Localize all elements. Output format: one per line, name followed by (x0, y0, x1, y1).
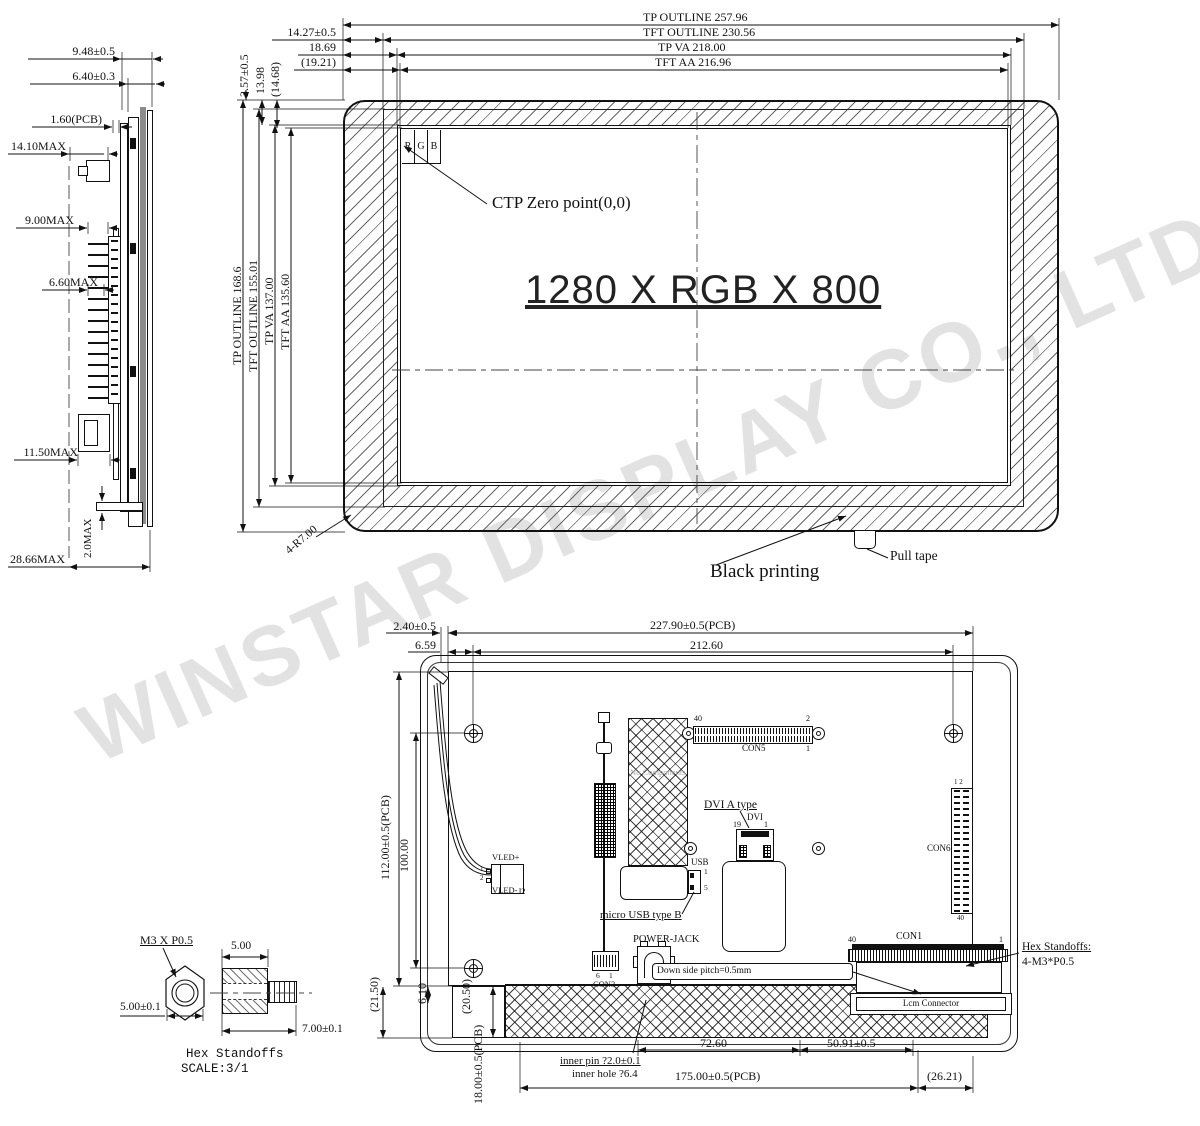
side-boss-top (86, 160, 110, 182)
lcm-connector-inner: Lcm Connector (856, 997, 1006, 1011)
con1-pin-row (848, 949, 1008, 962)
con6-label: CON6 (927, 844, 951, 854)
dvi-pin19: 19 (733, 821, 741, 830)
frame-clip (130, 366, 136, 377)
hex-standoffs-note: Hex Standoffs: (1022, 941, 1091, 954)
dim-11200: 112.00±0.5(PCB) (379, 795, 392, 880)
frame-clip (130, 468, 136, 479)
side-glass (147, 110, 153, 527)
standoff-thread-label: M3 X P0.5 (140, 934, 193, 947)
side-connector-holes (111, 240, 118, 400)
usb-pin5: 5 (704, 884, 708, 892)
dim-2050: (20.50) (460, 979, 473, 1014)
dim-tft-outline-height: TFT OUTLINE 155.01 (247, 260, 260, 372)
vled-minus-label: VLED- (492, 886, 518, 895)
con6-pins-col2 (963, 790, 969, 912)
dvi-foot (763, 845, 771, 858)
dim-tft-aa-height: TFT AA 135.60 (279, 274, 292, 350)
dim-500-top: 5.00 (231, 940, 251, 953)
side-tape (140, 107, 146, 524)
dim-700: 7.00±0.1 (302, 1023, 343, 1036)
dim-1150: 11.50MAX (14, 446, 78, 459)
rod-pad (598, 712, 610, 723)
side-bracket-horizontal (96, 502, 143, 511)
vled-plus-label: VLED+ (492, 853, 519, 862)
side-connector-pins (88, 243, 109, 401)
con6-pin12: 1 2 (954, 779, 963, 787)
con1-pin40: 40 (848, 936, 856, 945)
dim-357: 3.57±0.5 (238, 54, 251, 97)
standoff-title: Hex Standoffs (186, 1048, 284, 1062)
micro-usb-label: micro USB type B (600, 909, 682, 921)
vled-pin1: 1 (480, 866, 484, 874)
con3-pin6: 6 (596, 972, 600, 980)
side-boss-top-pin (78, 166, 88, 176)
board-hole (684, 842, 697, 855)
dim-2621: (26.21) (927, 1070, 962, 1083)
power-jack-tab (633, 956, 638, 968)
dim-900: 9.00MAX (16, 214, 74, 227)
con5-pin40: 40 (694, 715, 702, 724)
pitch-label: Down side pitch=0.5mm (657, 966, 751, 976)
engineering-drawing: WINSTAR DISPLAY CO., LTD. R G B CTP Zero… (0, 0, 1200, 1126)
standoff-scale: SCALE:3/1 (181, 1063, 249, 1077)
standoff-stud (268, 981, 297, 1003)
standoff-bore (223, 983, 267, 1000)
con1-pin1: 1 (999, 936, 1003, 945)
pull-tape-label: Pull tape (890, 549, 938, 564)
black-printing-label: Black printing (710, 562, 819, 583)
mounting-screw (464, 959, 483, 978)
con5-pin1: 1 (806, 745, 810, 754)
vled-j2-label: J2 (518, 887, 526, 896)
con3-pins (594, 955, 617, 967)
dim-240: 2.40±0.5 (384, 620, 436, 633)
pull-tape-tab (854, 530, 876, 549)
vled-pin (486, 878, 491, 883)
dim-948: 9.48±0.5 (28, 45, 115, 58)
no-components-area (628, 718, 688, 866)
hex-standoffs-spec: 4-M3*P0.5 (1022, 956, 1074, 969)
dvi-pin1: 1 (764, 821, 768, 830)
dim-640: 6.40±0.3 (30, 70, 115, 83)
dvi-type-label: DVI A type (704, 799, 757, 812)
rod-cap (596, 742, 612, 754)
dvi-top-bar (741, 831, 769, 837)
dvi-label: DVI (747, 813, 763, 823)
frame-clip (130, 243, 136, 254)
dim-tp-va-width: TP VA 218.00 (658, 41, 725, 54)
con6-pin40: 40 (957, 915, 964, 923)
dim-1427: 14.27±0.5 (270, 26, 336, 39)
dim-22790: 227.90±0.5(PCB) (650, 619, 735, 632)
dim-5091: 50.91±0.5 (827, 1037, 876, 1050)
mounting-screw (944, 724, 963, 743)
frame-clip (130, 138, 136, 149)
board-hole (812, 842, 825, 855)
con5-pins-row2 (695, 736, 811, 742)
dim-tp-outline-height: TP OUTLINE 168.6 (231, 266, 244, 365)
vled-pin (486, 869, 491, 874)
dim-2866: 28.66MAX (3, 553, 65, 566)
con5-label: CON5 (742, 744, 766, 754)
dim-500: 5.00±0.1 (120, 1001, 161, 1014)
dim-7260: 72.60 (700, 1037, 727, 1050)
usb-pad (690, 885, 694, 890)
inner-pin-note: inner pin ?2.0±0.1 (560, 1055, 641, 1067)
vled-pin2: 2 (480, 875, 484, 883)
side-component-inner (84, 420, 98, 446)
dim-1869: 18.69 (296, 41, 336, 54)
dim-660: 6.60MAX (40, 276, 98, 289)
dim-tp-outline-width: TP OUTLINE 257.96 (643, 11, 748, 24)
corner-radius-label: 4-R7.00 (283, 523, 320, 557)
dim-659: 6.59 (406, 639, 436, 652)
dim-1410: 14.10MAX (8, 140, 66, 153)
board-hole (812, 727, 825, 740)
no-components-label: No Components (630, 768, 686, 777)
usb-pin1: 1 (704, 868, 708, 876)
con6-pins-col1 (954, 790, 960, 912)
dim-17500: 175.00±0.5(PCB) (675, 1070, 760, 1083)
dim-1398: 13.98 (254, 67, 267, 94)
dim-1800: 18.00±0.5(PCB) (472, 1025, 485, 1104)
ctp-zero-point-label: CTP Zero point(0,0) (492, 194, 631, 213)
dim-10000: 100.00 (398, 839, 411, 872)
usb-module (620, 866, 688, 900)
lcm-connector-label: Lcm Connector (903, 999, 959, 1009)
rod-sleeve (594, 783, 616, 858)
dim-tft-aa-width: TFT AA 216.96 (655, 56, 731, 69)
power-jack-label: POWER-JACK (633, 934, 700, 946)
dvi-module-body (722, 861, 786, 952)
con3-pin1: 1 (609, 972, 613, 980)
pixel-g: G (414, 130, 427, 163)
side-bracket-vertical (128, 511, 143, 527)
side-backframe (120, 123, 128, 512)
dim-1921: (19.21) (292, 56, 336, 69)
rgb-pixel-cells: R G B (402, 130, 441, 164)
dim-610: 6.10 (416, 983, 429, 1004)
side-frame (128, 117, 139, 517)
pcb-board (448, 671, 973, 986)
con5-pin2: 2 (806, 715, 810, 724)
con1-body (856, 962, 1002, 993)
pixel-b: B (427, 130, 440, 163)
usb-pad (690, 873, 694, 878)
inner-hole-note: inner hole ?6.4 (572, 1068, 638, 1080)
con5-pins-row1 (695, 728, 811, 734)
dim-tp-va-height: TP VA 137.00 (263, 278, 276, 345)
resolution-label: 1280 X RGB X 800 (525, 268, 881, 312)
pixel-r: R (402, 130, 414, 163)
mounting-screw (464, 724, 483, 743)
dim-20: 2.0MAX (82, 519, 94, 558)
dim-tft-outline-width: TFT OUTLINE 230.56 (643, 26, 755, 39)
dim-160: 1.60(PCB) (30, 113, 102, 126)
dim-1468: (14.68) (269, 62, 282, 97)
dvi-foot (739, 845, 747, 858)
dim-2150: (21.50) (368, 977, 381, 1012)
con1-label: CON1 (896, 931, 922, 942)
dim-21260: 212.60 (690, 639, 723, 652)
con3-label: CON3 (593, 980, 615, 989)
